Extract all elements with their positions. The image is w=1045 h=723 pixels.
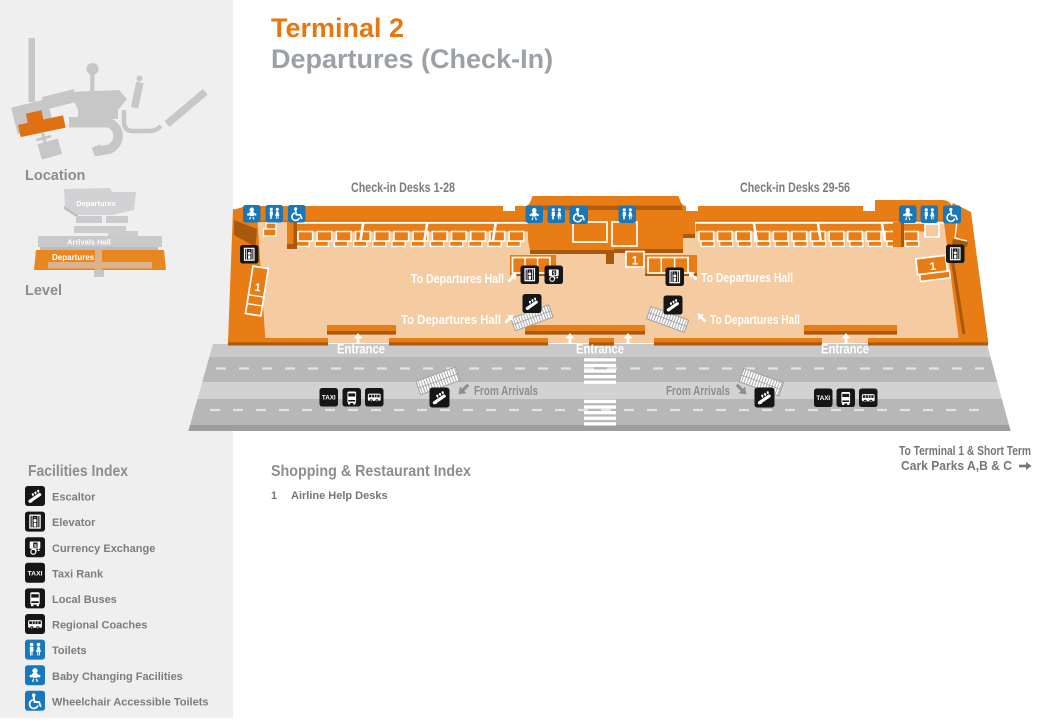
svg-text:Baby Changing Facilities: Baby Changing Facilities [52, 671, 183, 683]
svg-text:To Departures Hall: To Departures Hall [401, 312, 501, 327]
svg-text:Departures: Departures [76, 199, 116, 208]
svg-text:Wheelchair Accessible Toilets: Wheelchair Accessible Toilets [52, 696, 209, 708]
svg-text:Arrivals Hall: Arrivals Hall [67, 238, 111, 247]
svg-text:Entrance: Entrance [576, 341, 624, 357]
svg-text:Currency Exchange: Currency Exchange [52, 543, 155, 555]
svg-text:Departures (Check-In): Departures (Check-In) [271, 44, 553, 74]
svg-text:Elevator: Elevator [52, 517, 96, 529]
svg-text:Regional Coaches: Regional Coaches [52, 620, 147, 632]
svg-text:Escaltor: Escaltor [52, 492, 96, 504]
svg-text:To Terminal 1 & Short Term: To Terminal 1 & Short Term [899, 444, 1031, 458]
svg-text:From Arrivals: From Arrivals [474, 383, 538, 398]
svg-text:Location: Location [25, 168, 85, 184]
svg-text:Cark Parks A,B & C: Cark Parks A,B & C [901, 459, 1012, 473]
svg-text:Departures: Departures [52, 253, 95, 262]
svg-text:To Departures Hall: To Departures Hall [710, 312, 800, 327]
svg-text:From Arrivals: From Arrivals [666, 383, 730, 398]
svg-text:Local Buses: Local Buses [52, 594, 117, 606]
svg-text:Check-in Desks 29-56: Check-in Desks 29-56 [740, 180, 850, 195]
svg-text:1: 1 [632, 256, 639, 268]
svg-text:Facilities Index: Facilities Index [28, 463, 128, 480]
svg-text:To Departures Hall: To Departures Hall [701, 270, 793, 285]
svg-text:Check-in Desks 1-28: Check-in Desks 1-28 [351, 180, 455, 195]
svg-text:Level: Level [25, 283, 62, 299]
svg-text:To Departures Hall: To Departures Hall [411, 271, 504, 286]
svg-text:Entrance: Entrance [337, 341, 385, 357]
svg-text:Terminal 2: Terminal 2 [271, 13, 404, 43]
svg-text:Taxi Rank: Taxi Rank [52, 568, 104, 580]
svg-text:Shopping & Restaurant Index: Shopping & Restaurant Index [271, 463, 471, 480]
svg-text:Entrance: Entrance [821, 341, 869, 357]
svg-text:1: 1 [271, 490, 277, 502]
svg-text:Airline Help Desks: Airline Help Desks [291, 490, 388, 502]
svg-text:Toilets: Toilets [52, 645, 87, 657]
